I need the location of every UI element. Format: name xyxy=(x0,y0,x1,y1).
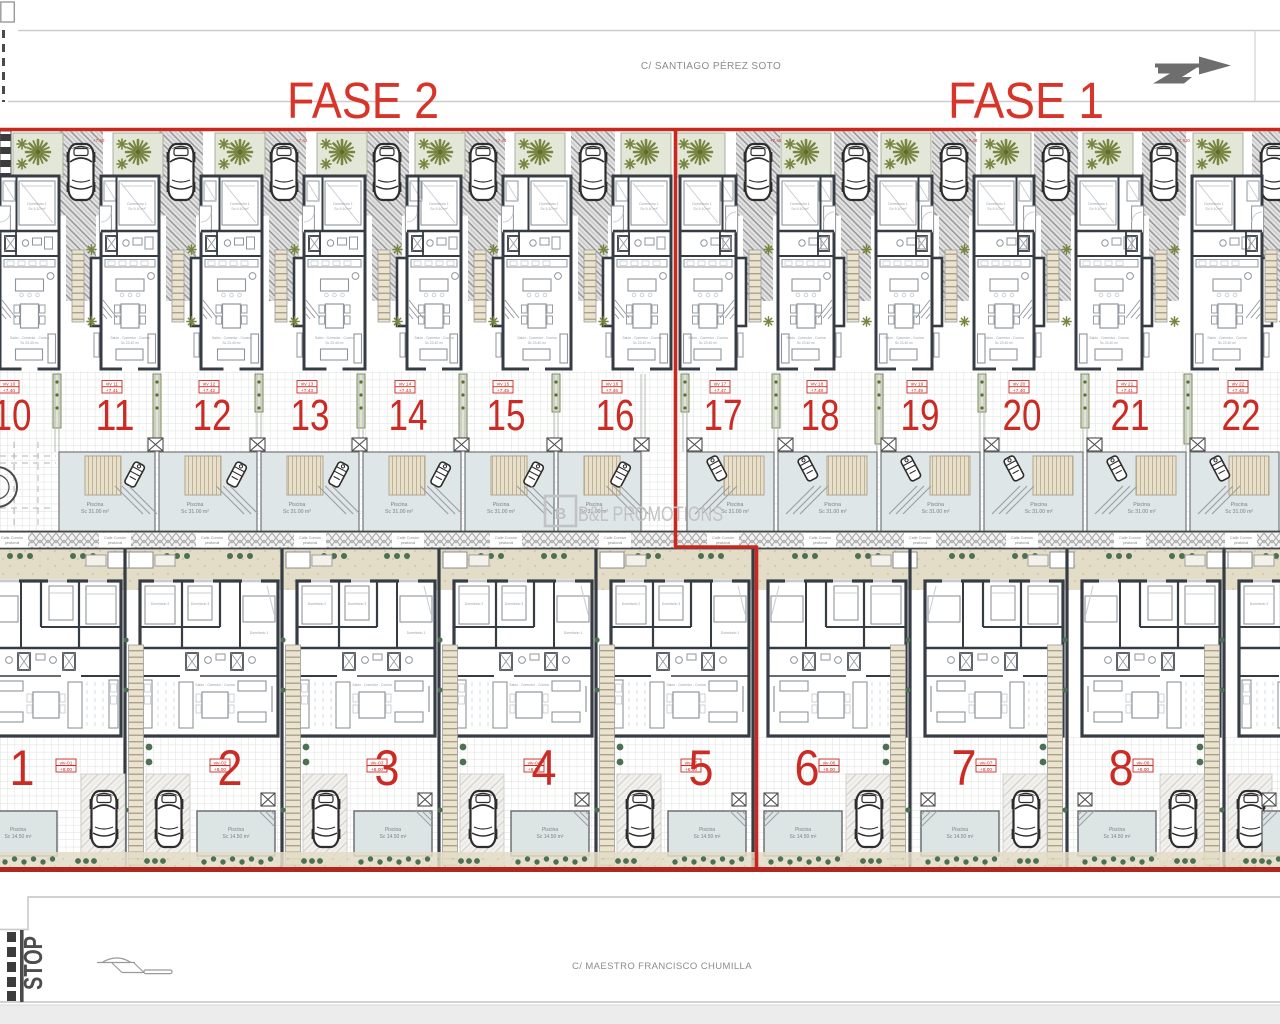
svg-text:Dormitorio 3: Dormitorio 3 xyxy=(505,602,524,606)
svg-text:Dormitorio 2: Dormitorio 2 xyxy=(622,602,641,606)
svg-text:+7.48: +7.48 xyxy=(966,138,978,143)
svg-text:Dormitorio 1: Dormitorio 1 xyxy=(127,202,147,206)
svg-text:Salón - Comedor - Cocina: Salón - Comedor - Cocina xyxy=(1089,336,1128,340)
svg-text:B&L PROMOTIONS: B&L PROMOTIONS xyxy=(578,503,723,526)
svg-text:Calle Común: Calle Común xyxy=(104,536,126,540)
svg-text:Salón - Comedor - Cocina: Salón - Comedor - Cocina xyxy=(1207,336,1246,340)
svg-text:Sc 23.40 m²: Sc 23.40 m² xyxy=(222,341,241,345)
svg-text:Sc 14.50 m²: Sc 14.50 m² xyxy=(947,834,974,840)
svg-text:Piscina: Piscina xyxy=(542,827,558,833)
svg-text:peatonal: peatonal xyxy=(1234,541,1249,545)
svg-text:Dormitorio 1: Dormitorio 1 xyxy=(888,202,908,206)
svg-text:Calle Común: Calle Común xyxy=(712,536,734,540)
svg-text:Dormitorio 2: Dormitorio 2 xyxy=(465,602,484,606)
svg-text:Salón - Comedor - Cocina: Salón - Comedor - Cocina xyxy=(352,683,391,687)
svg-text:Calle Común: Calle Común xyxy=(495,536,517,540)
svg-text:Sc 14.50 m²: Sc 14.50 m² xyxy=(380,834,407,840)
svg-text:12: 12 xyxy=(193,392,232,440)
svg-text:Salón - Comedor - Cocina: Salón - Comedor - Cocina xyxy=(10,336,49,340)
svg-text:Sc 9.10 m²: Sc 9.10 m² xyxy=(1205,207,1223,211)
svg-text:Piscina: Piscina xyxy=(699,827,715,833)
svg-text:+7.40: +7.40 xyxy=(93,138,105,143)
svg-text:viv 20: viv 20 xyxy=(1013,382,1026,388)
svg-text:Sc 23.40 m²: Sc 23.40 m² xyxy=(633,341,652,345)
svg-text:Calle Común: Calle Común xyxy=(1230,536,1252,540)
svg-text:Dormitorio 1: Dormitorio 1 xyxy=(1204,202,1224,206)
svg-text:Salón - Comedor - Cocina: Salón - Comedor - Cocina xyxy=(110,336,149,340)
svg-text:STOP: STOP xyxy=(18,936,48,990)
svg-text:Salón - Comedor - Cocina: Salón - Comedor - Cocina xyxy=(884,336,923,340)
svg-text:Sc 31.00 m²: Sc 31.00 m² xyxy=(1225,509,1253,515)
svg-text:viv 14: viv 14 xyxy=(399,382,412,388)
svg-text:Salón - Comedor - Cocina: Salón - Comedor - Cocina xyxy=(666,683,705,687)
svg-text:viv 13: viv 13 xyxy=(301,382,314,388)
svg-text:Sc 23.40 m²: Sc 23.40 m² xyxy=(20,341,39,345)
svg-text:FASE 2: FASE 2 xyxy=(287,72,439,129)
svg-text:peatonal: peatonal xyxy=(1123,541,1138,545)
svg-text:Sc 31.00 m²: Sc 31.00 m² xyxy=(283,509,311,515)
svg-text:Salón - Comedor - Cocina: Salón - Comedor - Cocina xyxy=(622,336,661,340)
svg-text:FASE 1: FASE 1 xyxy=(948,72,1104,129)
svg-text:Sc 31.00 m²: Sc 31.00 m² xyxy=(181,509,209,515)
svg-text:Dormitorio 2: Dormitorio 2 xyxy=(151,602,170,606)
svg-text:Dormitorio 1: Dormitorio 1 xyxy=(333,202,353,206)
svg-text:Sc 31.00 m²: Sc 31.00 m² xyxy=(1025,509,1053,515)
svg-text:Sc 9.10 m²: Sc 9.10 m² xyxy=(791,207,809,211)
svg-text:Sc 9.10 m²: Sc 9.10 m² xyxy=(1089,207,1107,211)
svg-text:Sc 23.40 m²: Sc 23.40 m² xyxy=(895,341,914,345)
svg-text:Sc 23.40 m²: Sc 23.40 m² xyxy=(1218,341,1237,345)
svg-text:4: 4 xyxy=(532,740,557,796)
svg-text:peatonal: peatonal xyxy=(205,541,220,545)
svg-text:viv 12: viv 12 xyxy=(203,382,216,388)
svg-text:21: 21 xyxy=(1111,392,1150,440)
svg-text:Dormitorio 1: Dormitorio 1 xyxy=(564,631,583,635)
svg-text:C/ MAESTRO FRANCISCO CHUMILLA: C/ MAESTRO FRANCISCO CHUMILLA xyxy=(572,961,752,972)
svg-text:+8.00: +8.00 xyxy=(980,767,992,773)
svg-text:Sc 9.10 m²: Sc 9.10 m² xyxy=(540,207,558,211)
svg-text:Sc 9.10 m²: Sc 9.10 m² xyxy=(693,207,711,211)
svg-text:Calle Común: Calle Común xyxy=(809,536,831,540)
svg-text:16: 16 xyxy=(596,392,635,440)
svg-text:peatonal: peatonal xyxy=(913,541,928,545)
svg-text:15: 15 xyxy=(487,392,526,440)
svg-text:Piscina: Piscina xyxy=(952,827,968,833)
svg-text:peatonal: peatonal xyxy=(303,541,318,545)
svg-text:6: 6 xyxy=(795,740,820,796)
svg-text:Piscina: Piscina xyxy=(391,502,408,508)
svg-text:+8.00: +8.00 xyxy=(60,767,72,773)
svg-text:Dormitorio 2: Dormitorio 2 xyxy=(308,602,327,606)
svg-text:17: 17 xyxy=(704,392,743,440)
svg-text:+7.44: +7.44 xyxy=(495,138,507,143)
svg-text:Dormitorio 3: Dormitorio 3 xyxy=(191,602,210,606)
svg-text:20: 20 xyxy=(1003,392,1042,440)
svg-text:14: 14 xyxy=(389,392,428,440)
svg-text:+7.46: +7.46 xyxy=(770,138,782,143)
svg-text:Sc 9.10 m²: Sc 9.10 m² xyxy=(430,207,448,211)
svg-text:19: 19 xyxy=(901,392,940,440)
svg-text:Calle Común: Calle Común xyxy=(909,536,931,540)
svg-text:Dormitorio 3: Dormitorio 3 xyxy=(348,602,367,606)
svg-text:Sc 31.00 m²: Sc 31.00 m² xyxy=(819,509,847,515)
svg-text:Piscina: Piscina xyxy=(289,502,306,508)
svg-text:Sc 14.50 m²: Sc 14.50 m² xyxy=(5,834,32,840)
svg-text:viv 11: viv 11 xyxy=(106,382,119,388)
svg-text:Sc 9.10 m²: Sc 9.10 m² xyxy=(334,207,352,211)
svg-text:Sc 14.50 m²: Sc 14.50 m² xyxy=(694,834,721,840)
svg-text:Dormitorio 1: Dormitorio 1 xyxy=(539,202,559,206)
svg-text:Sc 14.50 m²: Sc 14.50 m² xyxy=(537,834,564,840)
svg-text:Calle Común: Calle Común xyxy=(1011,536,1033,540)
svg-text:Dormitorio 1: Dormitorio 1 xyxy=(721,631,740,635)
svg-text:viv 15: viv 15 xyxy=(497,382,510,388)
svg-text:Sc 9.10 m²: Sc 9.10 m² xyxy=(889,207,907,211)
svg-text:Sc 31.00 m²: Sc 31.00 m² xyxy=(922,509,950,515)
svg-text:+7.410: +7.410 xyxy=(1176,138,1190,143)
svg-text:Dormitorio 1: Dormitorio 1 xyxy=(639,202,659,206)
svg-text:Calle Común: Calle Común xyxy=(299,536,321,540)
svg-text:1: 1 xyxy=(10,740,35,796)
svg-text:+8.00: +8.00 xyxy=(823,767,835,773)
svg-text:Piscina: Piscina xyxy=(228,827,244,833)
svg-text:Sc 23.40 m²: Sc 23.40 m² xyxy=(425,341,444,345)
svg-text:Calle Común: Calle Común xyxy=(1,536,23,540)
svg-text:Sc 9.10 m²: Sc 9.10 m² xyxy=(28,207,46,211)
svg-text:Dormitorio 1: Dormitorio 1 xyxy=(1088,202,1108,206)
svg-text:viv 17: viv 17 xyxy=(714,382,727,388)
svg-text:Dormitorio 3: Dormitorio 3 xyxy=(662,602,681,606)
svg-text:8: 8 xyxy=(1109,740,1134,796)
svg-text:Sc 31.00 m²: Sc 31.00 m² xyxy=(487,509,515,515)
svg-text:B: B xyxy=(555,506,567,523)
svg-text:Salón - Comedor - Cocina: Salón - Comedor - Cocina xyxy=(414,336,453,340)
svg-text:22: 22 xyxy=(1222,392,1261,440)
svg-text:peatonal: peatonal xyxy=(608,541,623,545)
svg-text:Piscina: Piscina xyxy=(187,502,204,508)
svg-text:Sc 23.40 m²: Sc 23.40 m² xyxy=(121,341,140,345)
svg-text:viv 16: viv 16 xyxy=(606,382,619,388)
svg-text:Sc 23.40 m²: Sc 23.40 m² xyxy=(995,341,1014,345)
svg-text:Piscina: Piscina xyxy=(1109,827,1125,833)
svg-text:Calle Común: Calle Común xyxy=(1119,536,1141,540)
svg-text:Piscina: Piscina xyxy=(87,502,104,508)
svg-text:Sc 9.10 m²: Sc 9.10 m² xyxy=(128,207,146,211)
svg-text:+8.00: +8.00 xyxy=(1137,767,1149,773)
svg-text:peatonal: peatonal xyxy=(813,541,828,545)
svg-text:Sc 9.10 m²: Sc 9.10 m² xyxy=(987,207,1005,211)
svg-text:Piscina: Piscina xyxy=(493,502,510,508)
svg-text:Sc 23.40 m²: Sc 23.40 m² xyxy=(1100,341,1119,345)
svg-text:Dormitorio 1: Dormitorio 1 xyxy=(986,202,1006,206)
svg-text:5: 5 xyxy=(689,740,714,796)
svg-text:Sc 14.50 m²: Sc 14.50 m² xyxy=(790,834,817,840)
svg-text:viv 10: viv 10 xyxy=(3,382,16,388)
svg-text:Salón - Comedor - Cocina: Salón - Comedor - Cocina xyxy=(786,336,825,340)
svg-text:Piscina: Piscina xyxy=(1133,502,1150,508)
svg-text:Salón - Comedor - Cocina: Salón - Comedor - Cocina xyxy=(517,336,556,340)
svg-text:Sc 31.00 m²: Sc 31.00 m² xyxy=(1128,509,1156,515)
svg-text:peatonal: peatonal xyxy=(1015,541,1030,545)
svg-text:13: 13 xyxy=(291,392,330,440)
svg-text:Piscina: Piscina xyxy=(385,827,401,833)
svg-text:Dormitorio 1: Dormitorio 1 xyxy=(407,631,426,635)
svg-text:peatonal: peatonal xyxy=(499,541,514,545)
svg-text:peatonal: peatonal xyxy=(401,541,416,545)
svg-text:Sc 14.50 m²: Sc 14.50 m² xyxy=(1104,834,1131,840)
svg-text:Dormitorio 1: Dormitorio 1 xyxy=(27,202,47,206)
svg-text:11: 11 xyxy=(96,392,135,440)
svg-text:Sc 31.00 m²: Sc 31.00 m² xyxy=(81,509,109,515)
svg-text:Sc 23.40 m²: Sc 23.40 m² xyxy=(797,341,816,345)
svg-text:Sc 9.10 m²: Sc 9.10 m² xyxy=(640,207,658,211)
svg-text:2: 2 xyxy=(218,740,243,796)
svg-text:Sc 31.00 m²: Sc 31.00 m² xyxy=(721,509,749,515)
svg-text:viv-01: viv-01 xyxy=(60,761,73,767)
svg-text:Salón - Comedor - Cocina: Salón - Comedor - Cocina xyxy=(984,336,1023,340)
svg-text:Salón - Comedor - Cocina: Salón - Comedor - Cocina xyxy=(212,336,251,340)
svg-text:Sc 23.40 m²: Sc 23.40 m² xyxy=(528,341,547,345)
svg-text:Piscina: Piscina xyxy=(1030,502,1047,508)
svg-text:viv 22: viv 22 xyxy=(1232,382,1245,388)
svg-text:peatonal: peatonal xyxy=(716,541,731,545)
svg-text:viv 21: viv 21 xyxy=(1121,382,1134,388)
svg-text:peatonal: peatonal xyxy=(108,541,123,545)
svg-text:viv-08: viv-08 xyxy=(1137,761,1150,767)
svg-text:Dormitorio 1: Dormitorio 1 xyxy=(429,202,449,206)
svg-text:Sc 14.50 m²: Sc 14.50 m² xyxy=(223,834,250,840)
svg-text:Piscina: Piscina xyxy=(795,827,811,833)
svg-text:viv 19: viv 19 xyxy=(911,382,924,388)
svg-text:Piscina: Piscina xyxy=(824,502,841,508)
svg-text:Sc 23.40 m²: Sc 23.40 m² xyxy=(325,341,344,345)
svg-text:Dormitorio 1: Dormitorio 1 xyxy=(230,202,250,206)
svg-text:Piscina: Piscina xyxy=(1231,502,1248,508)
svg-text:Salón - Comedor - Cocina: Salón - Comedor - Cocina xyxy=(315,336,354,340)
svg-text:+7.42: +7.42 xyxy=(296,138,308,143)
svg-text:Salón - Comedor - Cocina: Salón - Comedor - Cocina xyxy=(509,683,548,687)
svg-text:10: 10 xyxy=(0,392,32,440)
svg-text:Dormitorio 1: Dormitorio 1 xyxy=(250,631,269,635)
svg-text:Salón - Comedor - Cocina: Salón - Comedor - Cocina xyxy=(195,683,234,687)
svg-text:peatonal: peatonal xyxy=(5,541,20,545)
svg-text:Piscina: Piscina xyxy=(727,502,744,508)
svg-text:Dormitorio 2: Dormitorio 2 xyxy=(1250,602,1269,606)
svg-text:Calle Común: Calle Común xyxy=(397,536,419,540)
svg-text:7: 7 xyxy=(952,740,977,796)
svg-text:Sc 31.00 m²: Sc 31.00 m² xyxy=(385,509,413,515)
svg-text:viv-07: viv-07 xyxy=(980,761,993,767)
svg-text:Dormitorio 1: Dormitorio 1 xyxy=(692,202,712,206)
svg-text:Dormitorio 1: Dormitorio 1 xyxy=(790,202,810,206)
svg-text:viv 18: viv 18 xyxy=(811,382,824,388)
svg-text:Sc 23.40 m²: Sc 23.40 m² xyxy=(699,341,718,345)
svg-text:Calle Común: Calle Común xyxy=(604,536,626,540)
svg-text:Calle Común: Calle Común xyxy=(201,536,223,540)
svg-text:Salón - Comedor - Cocina: Salón - Comedor - Cocina xyxy=(688,336,727,340)
svg-text:Piscina: Piscina xyxy=(927,502,944,508)
svg-text:Sc 9.10 m²: Sc 9.10 m² xyxy=(231,207,249,211)
svg-text:Piscina: Piscina xyxy=(10,827,26,833)
svg-text:C/ SANTIAGO PÉREZ SOTO: C/ SANTIAGO PÉREZ SOTO xyxy=(641,59,781,72)
svg-text:3: 3 xyxy=(375,740,400,796)
svg-text:viv-06: viv-06 xyxy=(823,761,836,767)
svg-text:18: 18 xyxy=(801,392,840,440)
